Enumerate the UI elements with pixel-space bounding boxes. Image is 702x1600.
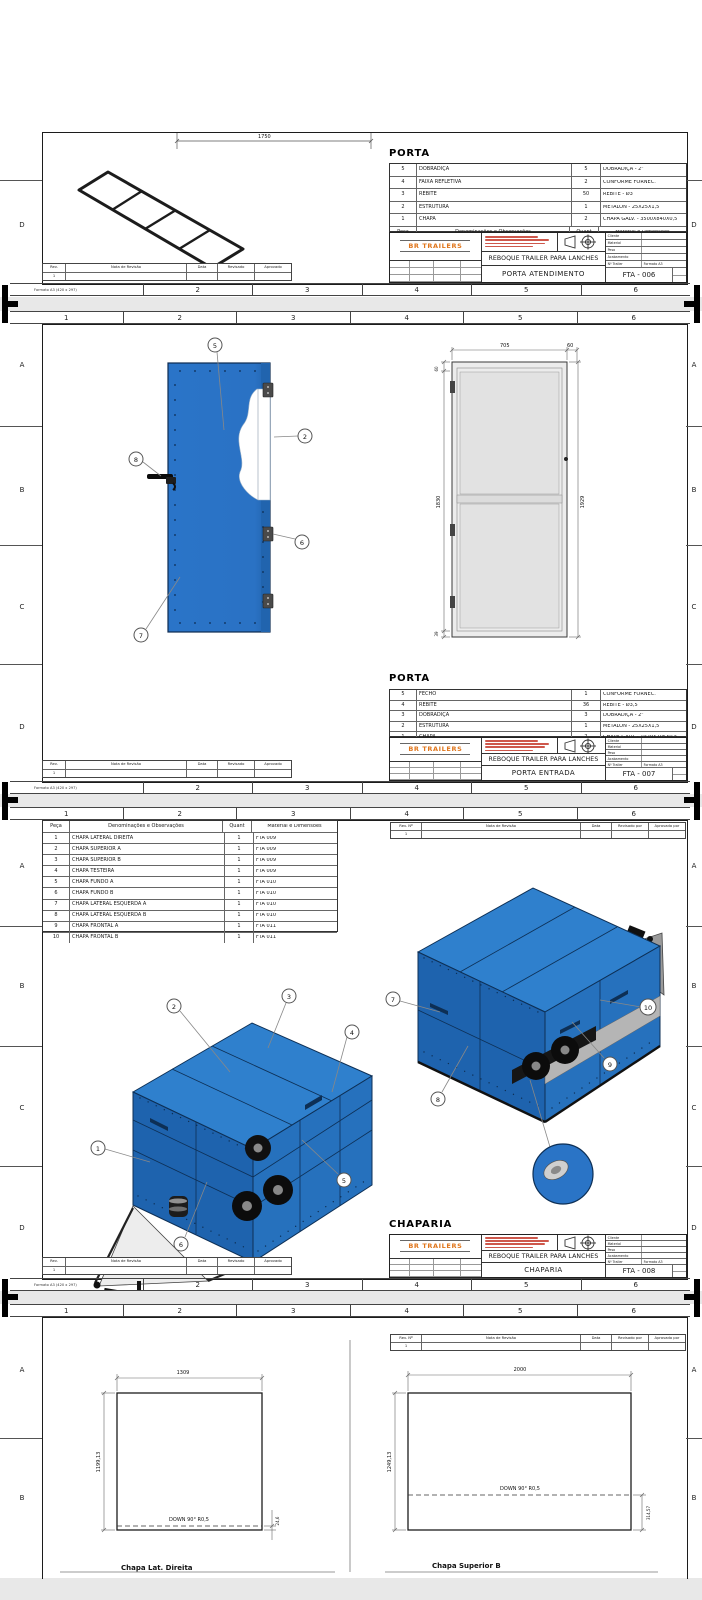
sheet3-title-block: BR TRAILERS REBOQUE TRAILER PARA LANCHES… (389, 1234, 687, 1278)
format-note: Formato A3 (420 x 297) (10, 782, 143, 793)
parts-row: 10CHAPA FRONTAL B 1FTA 011 (43, 932, 337, 943)
sheet2-bottom-columns: Formato A3 (420 x 297) 23 45 6 (10, 781, 690, 794)
sheet2-title-block: BR TRAILERS REBOQUE TRAILER PARA LANCHES… (389, 737, 687, 781)
parts-row: 5DOBRADIÇA 5DOBRADIÇA - 2" (390, 164, 686, 176)
project-name: REBOQUE TRAILER PARA LANCHES (482, 1250, 605, 1262)
parts-row: 3REBITE 50REBITE - Ø3 (390, 188, 686, 201)
sheet3-section-title: CHAPARIA (389, 1219, 452, 1230)
parts-row: 9CHAPA FRONTAL A 1FTA 011 (43, 921, 337, 932)
sheet3-revision-header: Rev. NºNota de RevisãoDataRevisado porAp… (390, 822, 686, 839)
drawing-viewer: { "colors":{"accent_blue":"#2a74c8","roo… (0, 0, 702, 1600)
sheet-number-cells (672, 268, 686, 282)
project-name: REBOQUE TRAILER PARA LANCHES (482, 753, 605, 765)
sheet1-bottom-columns: Formato A3 (420 x 297) 23 45 6 (10, 283, 690, 296)
row-letter: A (687, 862, 701, 870)
parts-row: 2CHAPA SUPERIOR A 1FTA 009 (43, 843, 337, 854)
sheet2-top-columns: 12 34 56 (10, 311, 690, 324)
crop-mark (2, 797, 18, 803)
sheet3-bottom-columns: Formato A3 (420 x 297) 23 45 6 (10, 1278, 690, 1291)
row-letter: D (15, 1224, 29, 1232)
row-letter: B (15, 982, 29, 990)
drawing-title: PORTA ENTRADA (482, 765, 605, 780)
sheet2-revision-strip: Rev.Nota de RevisãoDataRevisadoAprovado … (42, 760, 292, 778)
row-letter: D (15, 221, 29, 229)
parts-row: 8CHAPA LATERAL ESQUERDA B 1FTA 010 (43, 910, 337, 921)
sheet-number-cells (672, 1265, 686, 1277)
parts-row: 5FECHO 1CONFORME FORNEC. (390, 690, 686, 700)
drawing-code: FTA - 008 (606, 1265, 672, 1277)
row-letter: C (15, 603, 29, 611)
row-letter: A (15, 361, 29, 369)
signature-grid (390, 761, 481, 780)
margin-divider (686, 180, 702, 181)
row-letter: B (687, 1494, 701, 1502)
parts-row: 7CHAPA LATERAL ESQUERDA A 1FTA 010 (43, 899, 337, 910)
sheet3-top-columns: 12 34 56 (10, 807, 690, 820)
drawing-title: PORTA ATENDIMENTO (482, 265, 605, 282)
row-letter: D (687, 221, 701, 229)
sheet2-section-title: PORTA (389, 673, 430, 684)
brand-logo: BR TRAILERS (400, 240, 470, 252)
crop-mark (684, 797, 700, 803)
margin-divider (0, 180, 42, 181)
brand-logo: BR TRAILERS (400, 743, 470, 755)
row-letter: B (15, 1494, 29, 1502)
drawing-code: FTA - 007 (606, 768, 672, 780)
sheet4-frame (42, 1317, 688, 1579)
sheet1-parts-table: 5DOBRADIÇA 5DOBRADIÇA - 2" 4FAIXA REFLET… (389, 163, 687, 232)
confidentiality-notice (482, 1235, 558, 1250)
projection-symbol-icon (558, 1235, 605, 1250)
row-letter: B (687, 982, 701, 990)
row-letter: D (687, 723, 701, 731)
signature-grid (390, 1258, 481, 1277)
crop-mark (2, 1294, 18, 1300)
row-letter: C (687, 603, 701, 611)
confidentiality-notice (482, 738, 558, 753)
parts-row: 2ESTRUTURA 1METALON - 25X25X1,5 (390, 721, 686, 732)
parts-row: 6CHAPA FUNDO B 1FTA 010 (43, 887, 337, 898)
parts-row: 3DOBRADIÇA 3DOBRADIÇA - 2" (390, 710, 686, 721)
crop-mark (684, 301, 700, 307)
brand-logo: BR TRAILERS (400, 1240, 470, 1252)
row-letter: A (687, 1366, 701, 1374)
row-letter: B (687, 486, 701, 494)
signature-grid (390, 260, 481, 282)
parts-row: 5CHAPA FUNDO A 1FTA 010 (43, 876, 337, 887)
drawing-title: CHAPARIA (482, 1262, 605, 1277)
sheet1-revision-strip: Rev.Nota de RevisãoDataRevisadoAprovado … (42, 263, 292, 281)
sheet3-parts-table: PeçaDenominações e Observações QuantMate… (42, 820, 338, 932)
projection-symbol-icon (558, 233, 605, 251)
project-name: REBOQUE TRAILER PARA LANCHES (482, 251, 605, 265)
sheet4-top-columns: 12 34 56 (10, 1304, 690, 1317)
format-note: Formato A3 (420 x 297) (10, 1279, 143, 1290)
sheet-gap-1 (0, 297, 702, 311)
sheet-number-cells (672, 768, 686, 780)
row-letter: C (687, 1104, 701, 1112)
parts-row: 3CHAPA SUPERIOR B 1FTA 009 (43, 854, 337, 865)
row-letter: C (15, 1104, 29, 1112)
parts-row: 2ESTRUTURA 1METALON - 25X25X1,5 (390, 201, 686, 214)
row-letter: B (15, 486, 29, 494)
row-letter: D (15, 723, 29, 731)
parts-header-row: PeçaDenominações e Observações QuantMate… (43, 821, 337, 832)
viewport-bottom-band (0, 1578, 702, 1600)
parts-row: 1CHAPA 2CHAPA GALV. - 3500X840X0,5 (390, 213, 686, 226)
sheet4-revision-header: Rev. NºNota de RevisãoDataRevisado porAp… (390, 1334, 686, 1351)
row-letter: A (15, 862, 29, 870)
parts-row: 4CHAPA TESTEIRA 1FTA 009 (43, 865, 337, 876)
projection-symbol-icon (558, 738, 605, 753)
format-note: Formato A3 (420 x 297) (10, 284, 143, 295)
sheet3-revision-strip: Rev.Nota de RevisãoDataRevisadoAprovado … (42, 1257, 292, 1275)
drawing-code: FTA - 006 (606, 268, 672, 282)
confidentiality-notice (482, 233, 558, 251)
sheet1-title-block: BR TRAILERS REBOQUE TRAILER PARA LANCHES… (389, 232, 687, 283)
row-letter: A (15, 1366, 29, 1374)
crop-mark (684, 1294, 700, 1300)
sheet1-section-title: PORTA (389, 148, 430, 159)
row-letter: A (687, 361, 701, 369)
parts-row: 1CHAPA LATERAL DIREITA 1FTA 009 (43, 832, 337, 843)
parts-row: 4FAIXA REFLETIVA 2CONFORME FORNEC. (390, 176, 686, 189)
sheet-gap-3 (0, 1291, 702, 1304)
row-letter: D (687, 1224, 701, 1232)
parts-row: 4REBITE 36REBITE - Ø3,5 (390, 700, 686, 711)
sheet2-parts-table: 5FECHO 1CONFORME FORNEC. 4REBITE 36REBIT… (389, 689, 687, 737)
crop-mark (2, 301, 18, 307)
sheet-gap-2 (0, 794, 702, 807)
